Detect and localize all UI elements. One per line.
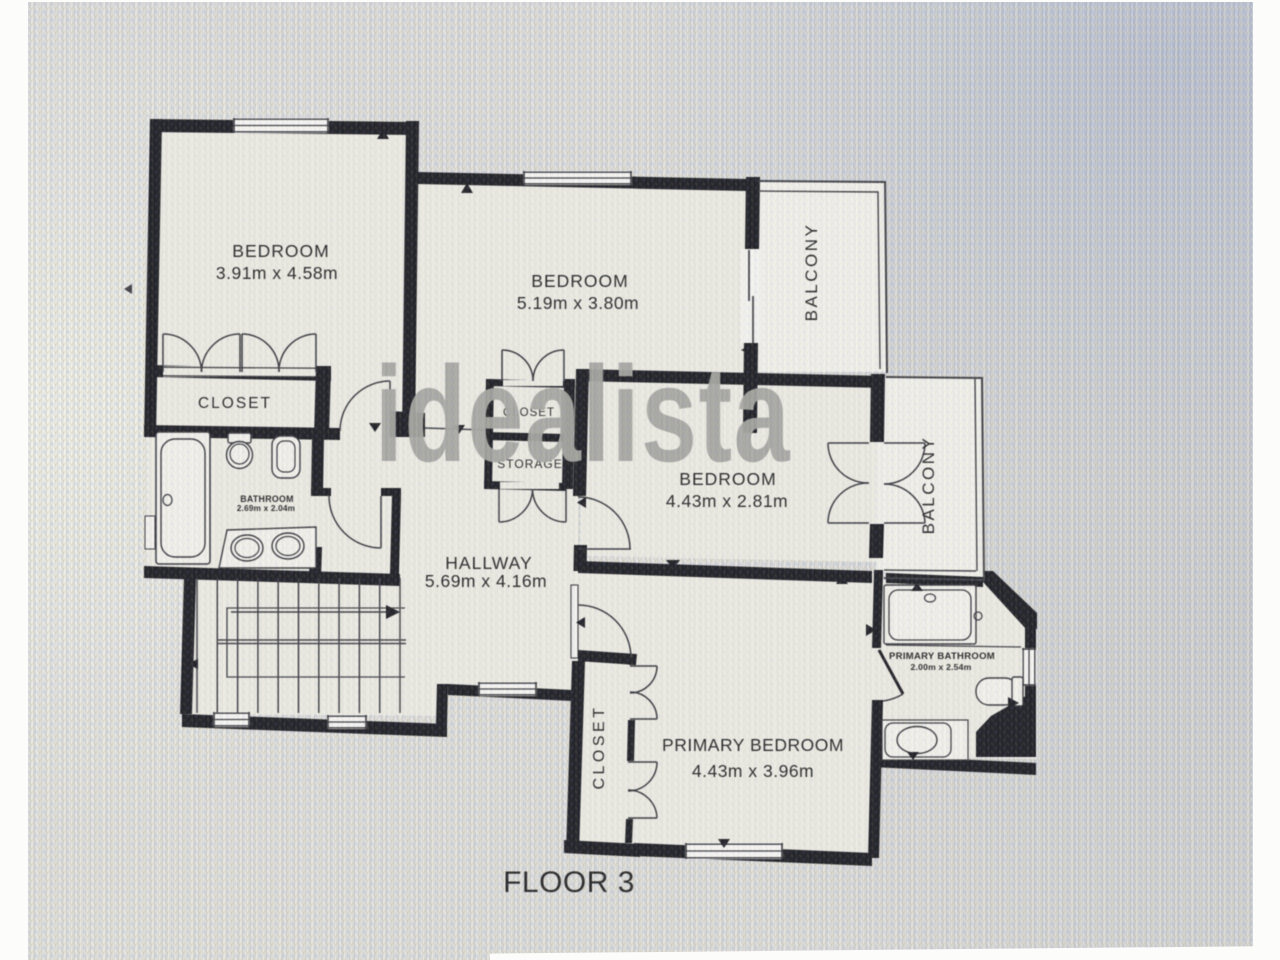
svg-text:BEDROOM: BEDROOM — [232, 241, 329, 261]
svg-text:HALLWAY: HALLWAY — [445, 553, 532, 573]
svg-text:5.19m x 3.80m: 5.19m x 3.80m — [517, 293, 639, 313]
svg-text:3.91m x 4.58m: 3.91m x 4.58m — [216, 263, 338, 283]
svg-text:PRIMARY BATHROOM: PRIMARY BATHROOM — [889, 651, 995, 662]
svg-text:BEDROOM: BEDROOM — [531, 271, 628, 291]
svg-text:2.69m x 2.04m: 2.69m x 2.04m — [237, 504, 295, 513]
svg-text:5.69m x 4.16m: 5.69m x 4.16m — [425, 571, 547, 591]
svg-text:BALCONY: BALCONY — [802, 223, 821, 322]
svg-text:4.43m x 2.81m: 4.43m x 2.81m — [666, 491, 788, 511]
svg-text:CLOSET: CLOSET — [198, 395, 272, 412]
svg-text:4.43m x 3.96m: 4.43m x 3.96m — [692, 761, 814, 781]
svg-text:PRIMARY BEDROOM: PRIMARY BEDROOM — [662, 735, 844, 755]
svg-text:2.00m x 2.54m: 2.00m x 2.54m — [911, 662, 972, 672]
svg-text:CLOSET: CLOSET — [591, 704, 608, 789]
svg-text:BATHROOM: BATHROOM — [240, 494, 294, 504]
svg-text:FLOOR 3: FLOOR 3 — [503, 866, 635, 899]
svg-text:idealista: idealista — [375, 339, 791, 490]
svg-text:BALCONY: BALCONY — [919, 436, 938, 535]
